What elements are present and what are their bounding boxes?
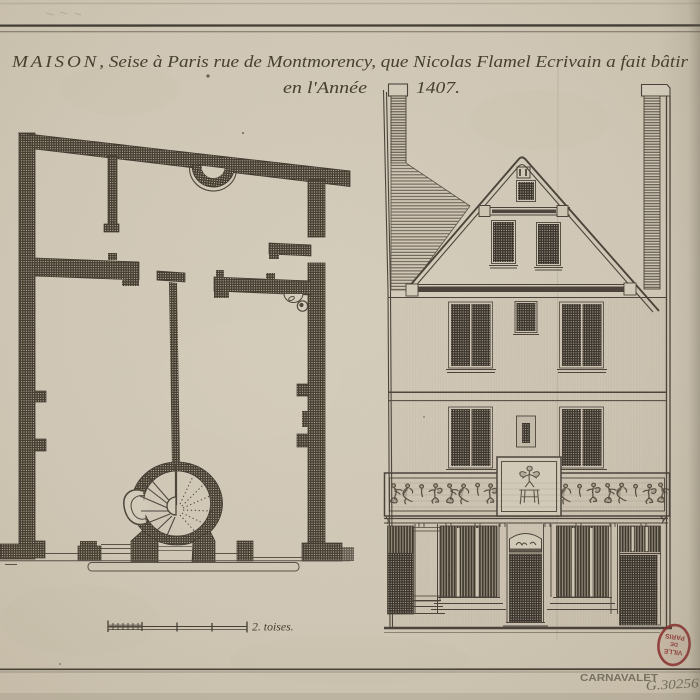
svg-text:en l'Année: en l'Année bbox=[283, 78, 368, 97]
svg-text:2. toises.: 2. toises. bbox=[252, 620, 294, 634]
svg-text:1407.: 1407. bbox=[416, 78, 460, 97]
svg-text:MAISON, Seise à Paris rue de M: MAISON, Seise à Paris rue de Montmorency… bbox=[11, 52, 689, 71]
